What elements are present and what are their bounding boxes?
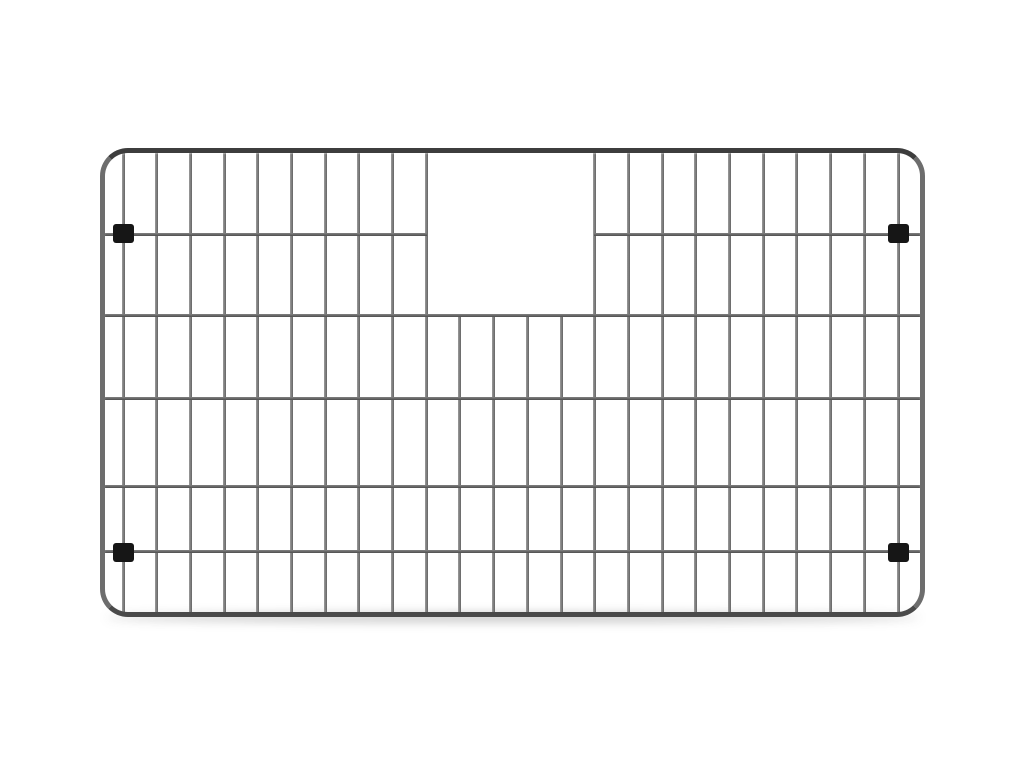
corner-foot: [888, 543, 909, 562]
grid-frame: [100, 148, 925, 617]
corner-foot: [113, 543, 134, 562]
corner-foot: [113, 224, 134, 243]
sink-grid: [0, 0, 1024, 768]
corner-foot: [888, 224, 909, 243]
product-photo: [0, 0, 1024, 768]
